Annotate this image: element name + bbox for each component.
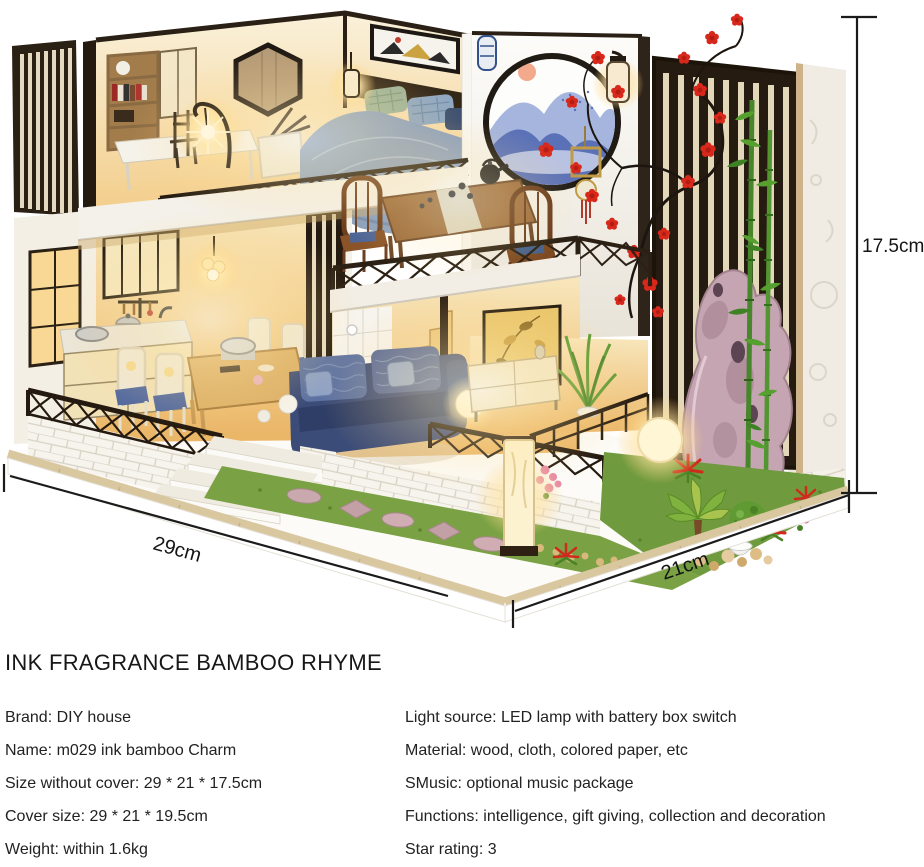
spec-cover-size: Cover size: 29 * 21 * 19.5cm	[5, 800, 262, 833]
spec-star-rating: Star rating: 3	[405, 833, 826, 866]
spec-functions: Functions: intelligence, gift giving, co…	[405, 800, 826, 833]
spec-material: Material: wood, cloth, colored paper, et…	[405, 734, 826, 767]
blue-ceramic-lantern	[478, 36, 496, 70]
spec-music: SMusic: optional music package	[405, 767, 826, 800]
product-photo: 17.5cm 29cm 21cm	[0, 0, 924, 640]
dimension-height-label: 17.5cm	[862, 236, 924, 257]
patterned-side-panel	[796, 63, 846, 486]
spec-column-left: Brand: DIY house Name: m029 ink bamboo C…	[5, 701, 262, 866]
spec-light-source: Light source: LED lamp with battery box …	[405, 701, 826, 734]
spec-size-without-cover: Size without cover: 29 * 21 * 17.5cm	[5, 767, 262, 800]
spec-weight: Weight: within 1.6kg	[5, 833, 262, 866]
spec-name: Name: m029 ink bamboo Charm	[5, 734, 262, 767]
product-listing-image: 17.5cm 29cm 21cm INK FRAGRANCE BAMBOO RH…	[0, 0, 924, 867]
spec-brand: Brand: DIY house	[5, 701, 262, 734]
spec-column-right: Light source: LED lamp with battery box …	[405, 701, 826, 866]
product-title: INK FRAGRANCE BAMBOO RHYME	[5, 650, 382, 676]
